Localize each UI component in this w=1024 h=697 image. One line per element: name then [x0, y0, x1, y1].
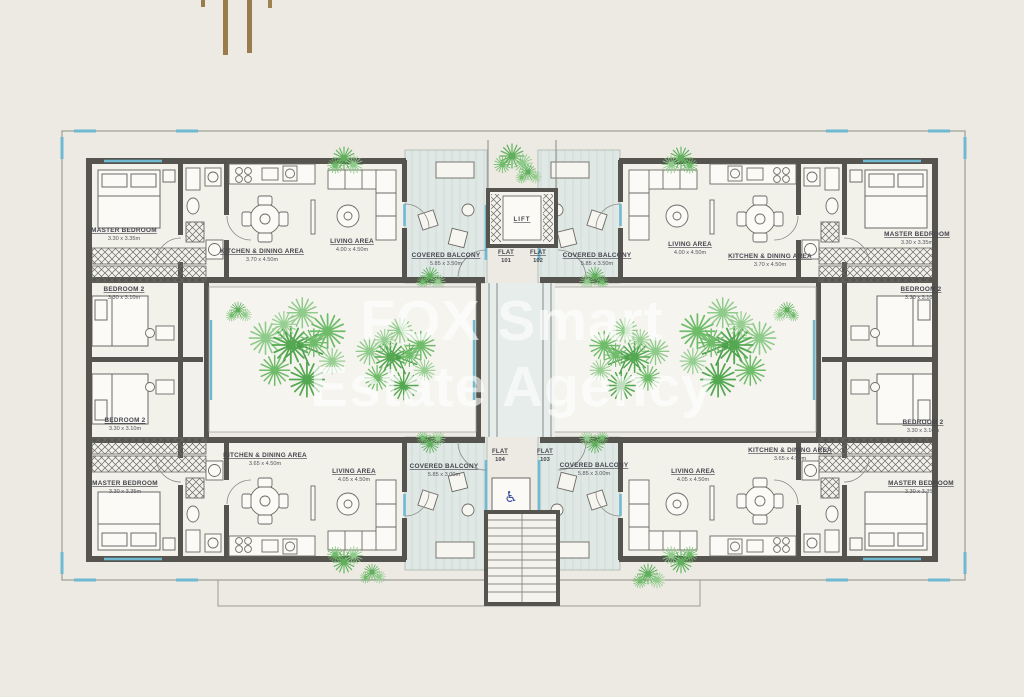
lift-label: LIFT: [513, 216, 530, 223]
label-balcony-102: COVERED BALCONY: [563, 252, 632, 259]
dim-kitchen-103: 3.65 x 4.50m: [774, 456, 807, 462]
label-living-104: LIVING AREA: [332, 468, 376, 475]
label-kitchen-101: KITCHEN & DINING AREA: [220, 248, 304, 255]
flat-101-word: FLAT: [498, 250, 514, 256]
dim-living-101: 4.00 x 4.50m: [336, 247, 369, 253]
dim-kitchen-104: 3.65 x 4.50m: [249, 461, 282, 467]
flat-102-word: FLAT: [530, 250, 546, 256]
dim-master-bedroom-101: 3.30 x 3.35m: [108, 236, 141, 242]
dim-master-bedroom-102: 3.30 x 3.35m: [901, 240, 934, 246]
flat-104-number: 104: [495, 457, 505, 463]
label-bedroom2-104: BEDROOM 2: [105, 417, 146, 424]
label-bedroom2-103: BEDROOM 2: [903, 419, 944, 426]
label-balcony-101: COVERED BALCONY: [412, 252, 481, 259]
dim-living-104: 4.05 x 4.50m: [338, 477, 371, 483]
floor-plan: MASTER BEDROOM 3.30 x 3.35m BEDROOM 2 3.…: [0, 0, 1024, 697]
dim-bedroom2-103: 3.30 x 3.10m: [907, 428, 940, 434]
plant-icon: [633, 564, 665, 588]
dim-balcony-102: 5.85 x 3.50m: [581, 261, 614, 267]
label-kitchen-104: KITCHEN & DINING AREA: [223, 452, 307, 459]
dim-balcony-101: 5.85 x 3.50m: [430, 261, 463, 267]
flat-102-number: 102: [533, 258, 543, 264]
dim-master-bedroom-103: 3.30 x 3.35m: [905, 489, 938, 495]
flat-103-word: FLAT: [537, 449, 553, 455]
flat-104-word: FLAT: [492, 449, 508, 455]
label-kitchen-102: KITCHEN & DINING AREA: [728, 253, 812, 260]
label-master-bedroom-102: MASTER BEDROOM: [884, 231, 950, 238]
label-balcony-104: COVERED BALCONY: [410, 463, 479, 470]
flat-101-number: 101: [501, 258, 511, 264]
label-bedroom2-102: BEDROOM 2: [901, 286, 942, 293]
label-master-bedroom-104: MASTER BEDROOM: [92, 480, 158, 487]
dim-bedroom2-104: 3.30 x 3.10m: [109, 426, 142, 432]
label-master-bedroom-103: MASTER BEDROOM: [888, 480, 954, 487]
accessibility-icon: ♿: [504, 488, 517, 506]
flat-103-number: 103: [540, 457, 550, 463]
label-living-101: LIVING AREA: [330, 238, 374, 245]
label-living-102: LIVING AREA: [668, 241, 712, 248]
dim-bedroom2-102: 3.30 x 3.10m: [905, 295, 938, 301]
dim-bedroom2-101: 3.30 x 3.10m: [108, 295, 141, 301]
page: MASTER BEDROOM 3.30 x 3.35m BEDROOM 2 3.…: [0, 0, 1024, 697]
courtyard-left: [88, 282, 481, 437]
label-master-bedroom-101: MASTER BEDROOM: [91, 227, 157, 234]
label-kitchen-103: KITCHEN & DINING AREA: [748, 447, 832, 454]
courtyard-right: [544, 282, 937, 437]
dim-living-103: 4.05 x 4.50m: [677, 477, 710, 483]
dim-kitchen-101: 3.70 x 4.50m: [246, 257, 279, 263]
dim-balcony-104: 5.85 x 3.00m: [428, 472, 461, 478]
label-balcony-103: COVERED BALCONY: [560, 462, 629, 469]
dim-kitchen-102: 3.70 x 4.50m: [754, 262, 787, 268]
dim-master-bedroom-104: 3.30 x 3.35m: [109, 489, 142, 495]
dim-balcony-103: 5.85 x 3.00m: [578, 471, 611, 477]
label-living-103: LIVING AREA: [671, 468, 715, 475]
dim-living-102: 4.00 x 4.50m: [674, 250, 707, 256]
label-bedroom2-101: BEDROOM 2: [104, 286, 145, 293]
staircase: [486, 512, 558, 604]
